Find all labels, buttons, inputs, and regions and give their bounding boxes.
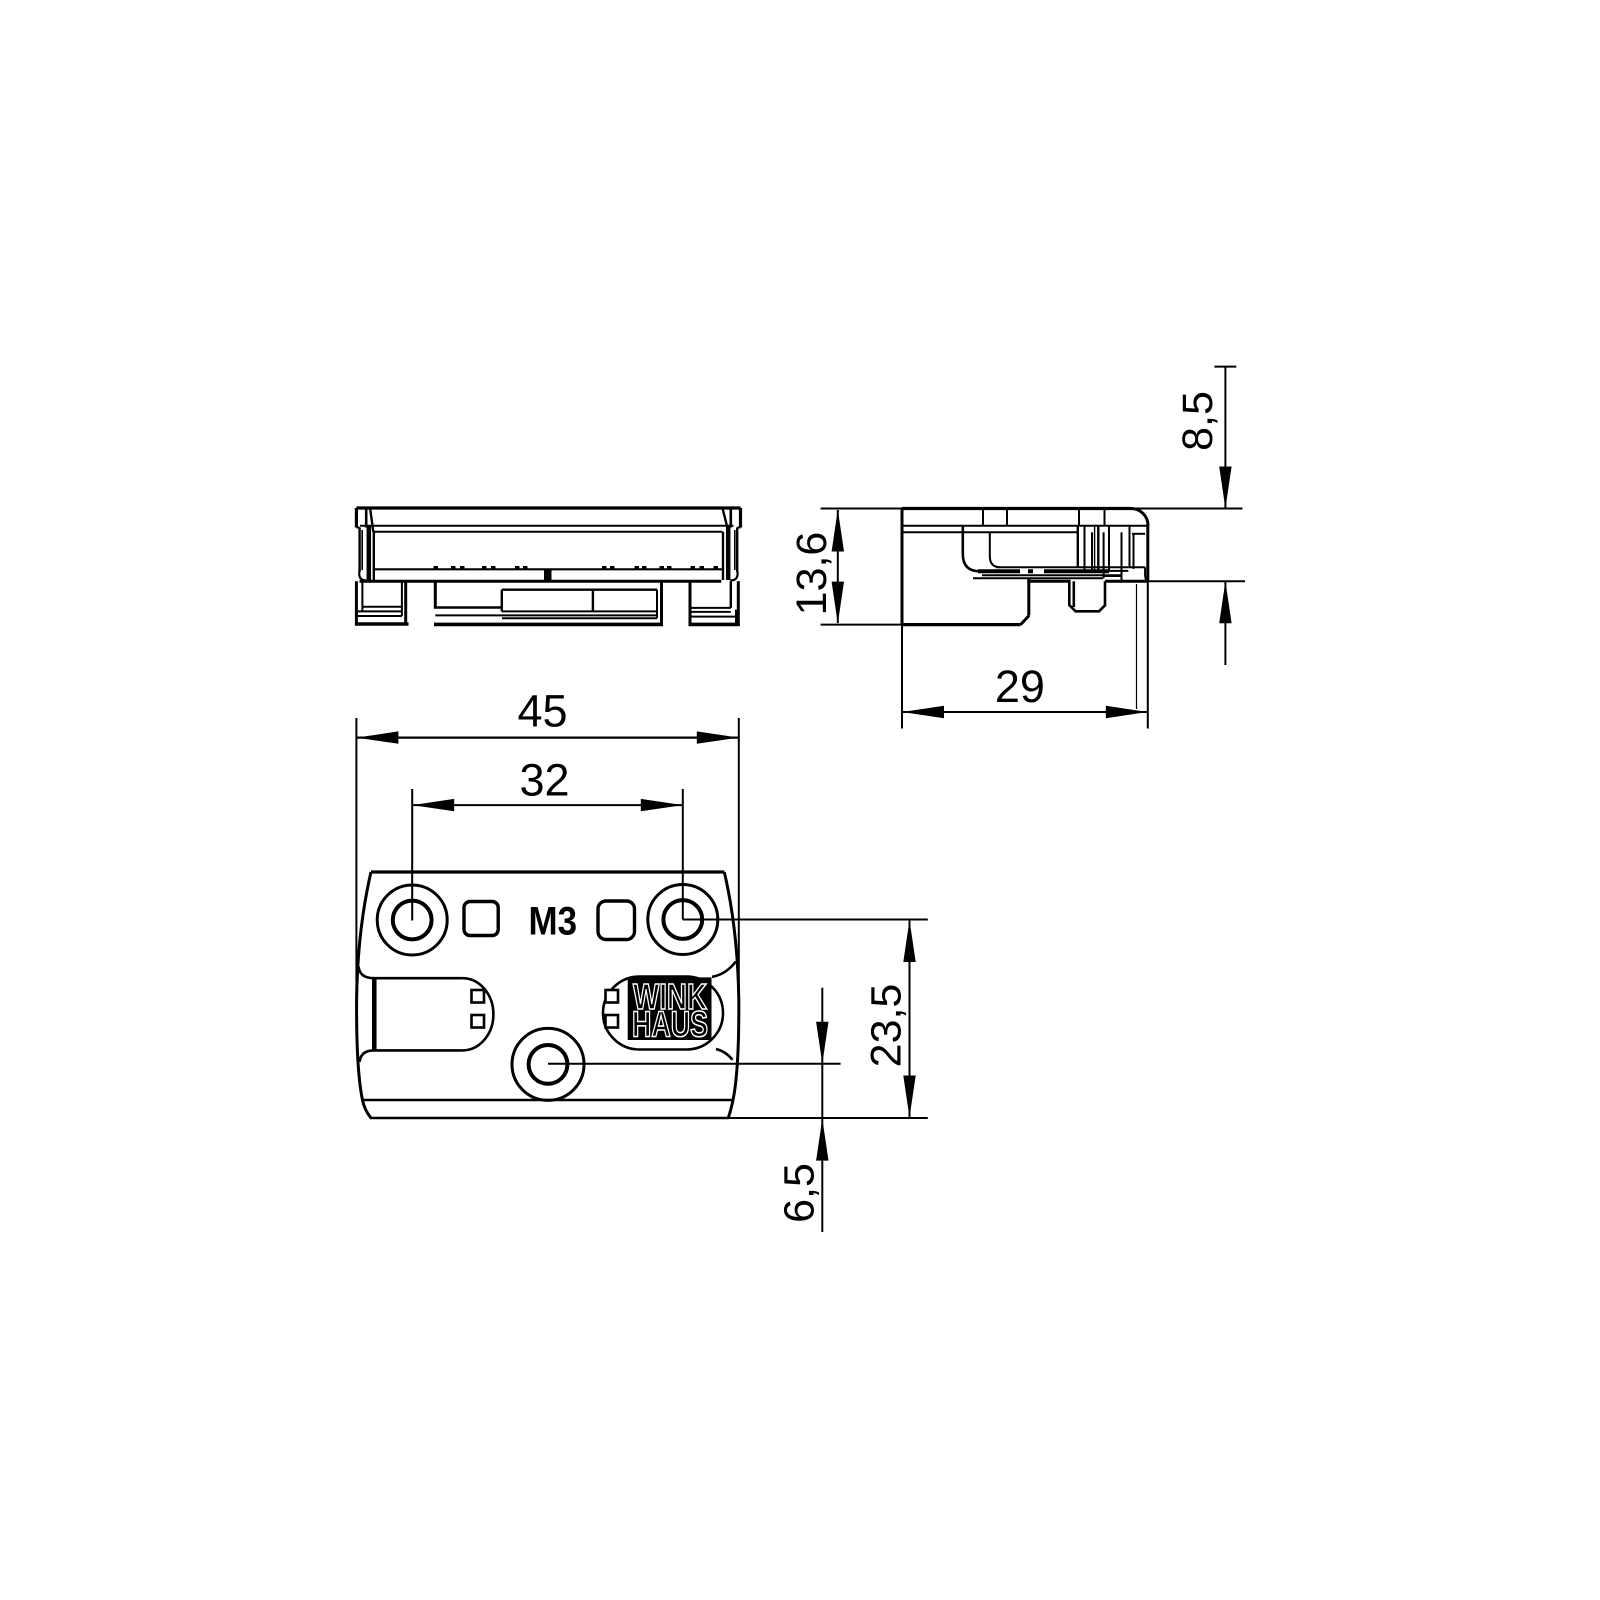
svg-text:45: 45 (517, 686, 567, 737)
svg-text:32: 32 (519, 755, 569, 806)
svg-text:HAUS: HAUS (632, 1004, 708, 1045)
svg-text:8,5: 8,5 (1174, 391, 1222, 451)
svg-text:13,6: 13,6 (788, 532, 836, 616)
svg-text:M3: M3 (529, 900, 578, 944)
svg-text:23,5: 23,5 (862, 984, 910, 1068)
svg-text:29: 29 (995, 661, 1045, 712)
svg-text:6,5: 6,5 (776, 1163, 824, 1223)
